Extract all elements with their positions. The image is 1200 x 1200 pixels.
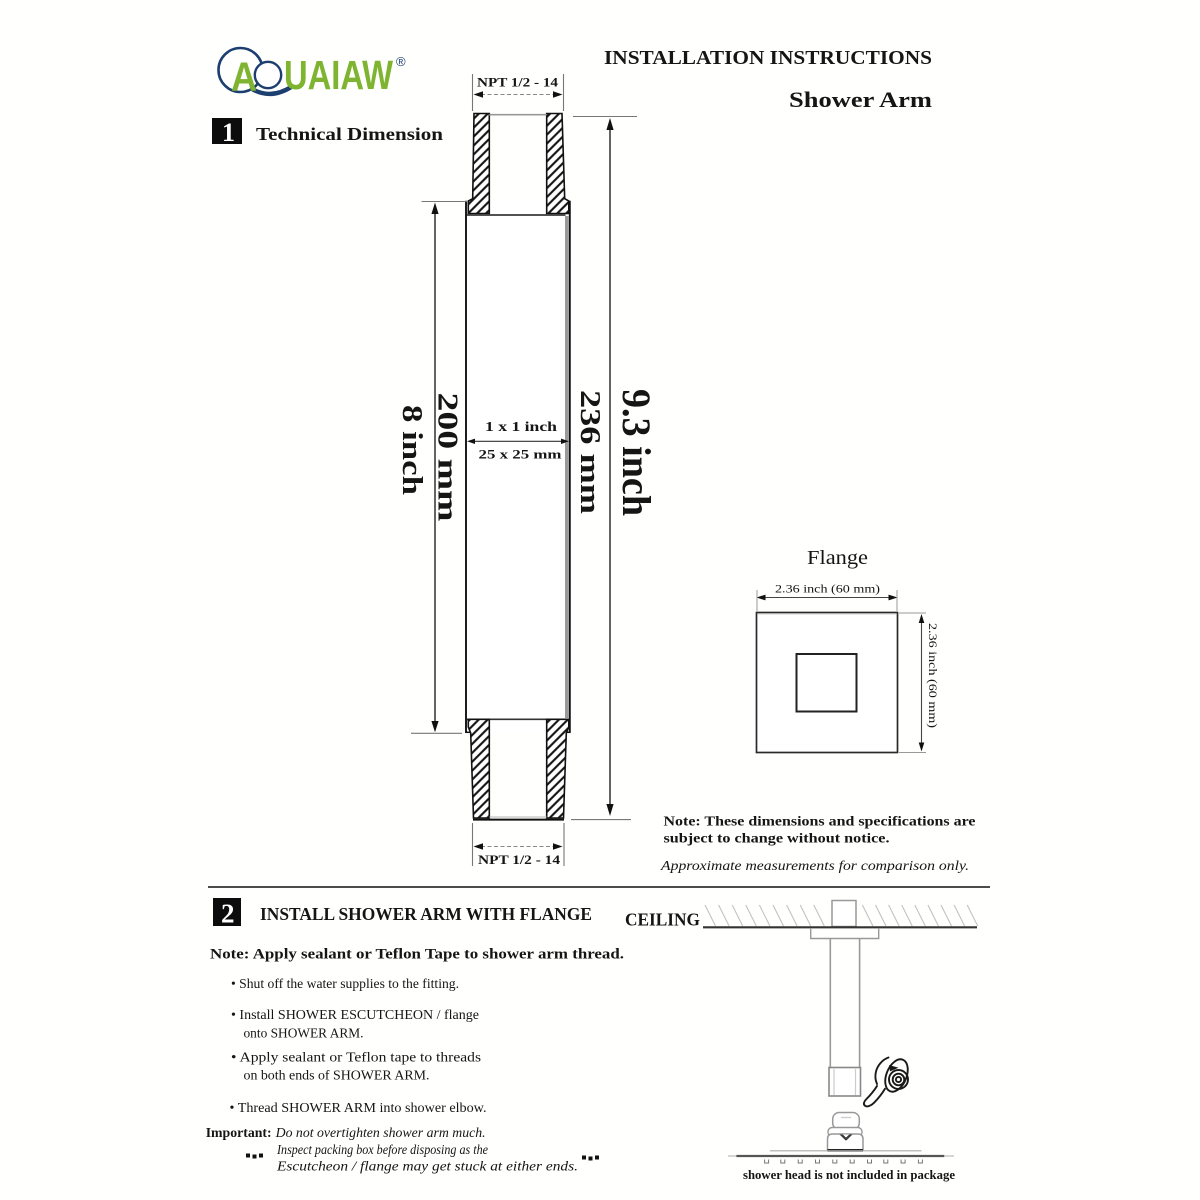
svg-text:• Thread SHOWER ARM into showe: • Thread SHOWER ARM into shower elbow. [230, 1100, 487, 1115]
svg-text:1 x 1 inch: 1 x 1 inch [485, 419, 558, 434]
svg-text:NPT 1/2 - 14: NPT 1/2 - 14 [478, 853, 561, 867]
svg-text:Shower Arm: Shower Arm [789, 87, 932, 112]
svg-text:on both ends of SHOWER ARM.: on both ends of SHOWER ARM. [244, 1068, 430, 1083]
svg-text:2.36 inch (60 mm): 2.36 inch (60 mm) [926, 623, 938, 728]
svg-text:Important:Do not overtighten s: Important:Do not overtighten shower arm … [206, 1125, 486, 1140]
svg-text:NPT 1/2 - 14: NPT 1/2 - 14 [477, 76, 559, 90]
svg-text:UAIAW: UAIAW [284, 52, 393, 98]
svg-text:8 inch: 8 inch [396, 405, 427, 496]
svg-text:• Apply sealant or Teflon tape: • Apply sealant or Teflon tape to thread… [231, 1050, 481, 1065]
svg-text:Approximate measurements for c: Approximate measurements for comparison … [660, 858, 969, 873]
svg-text:INSTALLATION INSTRUCTIONS: INSTALLATION INSTRUCTIONS [604, 47, 932, 69]
svg-text:subject to change without noti: subject to change without notice. [664, 831, 890, 846]
svg-text:Note: Apply sealant or Teflon: Note: Apply sealant or Teflon Tape to sh… [210, 947, 624, 963]
svg-text:200 mm: 200 mm [432, 393, 463, 522]
svg-text:Inspect packing box before dis: Inspect packing box before disposing as … [276, 1142, 488, 1157]
svg-text:• Install SHOWER ESCUTCHEON /: • Install SHOWER ESCUTCHEON / flange [231, 1007, 479, 1022]
svg-text:shower head is not included i: shower head is not included in package [743, 1168, 955, 1182]
svg-text:25 x 25 mm: 25 x 25 mm [479, 447, 562, 462]
svg-text:2.36 inch (60 mm): 2.36 inch (60 mm) [775, 584, 880, 596]
svg-text:Technical Dimension: Technical Dimension [256, 124, 443, 144]
svg-text:9.3 inch: 9.3 inch [614, 389, 659, 516]
svg-text:onto SHOWER ARM.: onto SHOWER ARM. [244, 1026, 364, 1041]
svg-text:CEILING: CEILING [625, 910, 700, 930]
svg-text:INSTALL SHOWER ARM WITH FLANGE: INSTALL SHOWER ARM WITH FLANGE [260, 904, 592, 924]
svg-text:Escutcheon / flange may get st: Escutcheon / flange may get stuck at eit… [276, 1159, 578, 1174]
svg-text:1: 1 [222, 118, 235, 147]
svg-text:Flange: Flange [807, 547, 868, 569]
svg-text:2: 2 [221, 899, 235, 929]
svg-text:236 mm: 236 mm [574, 390, 605, 514]
svg-text:®: ® [396, 54, 406, 69]
svg-text:A: A [231, 54, 257, 100]
svg-text:Note: These dimensions and spe: Note: These dimensions and specification… [664, 814, 976, 829]
svg-text:• Shut off the water supplies: • Shut off the water supplies to the fit… [231, 976, 459, 991]
